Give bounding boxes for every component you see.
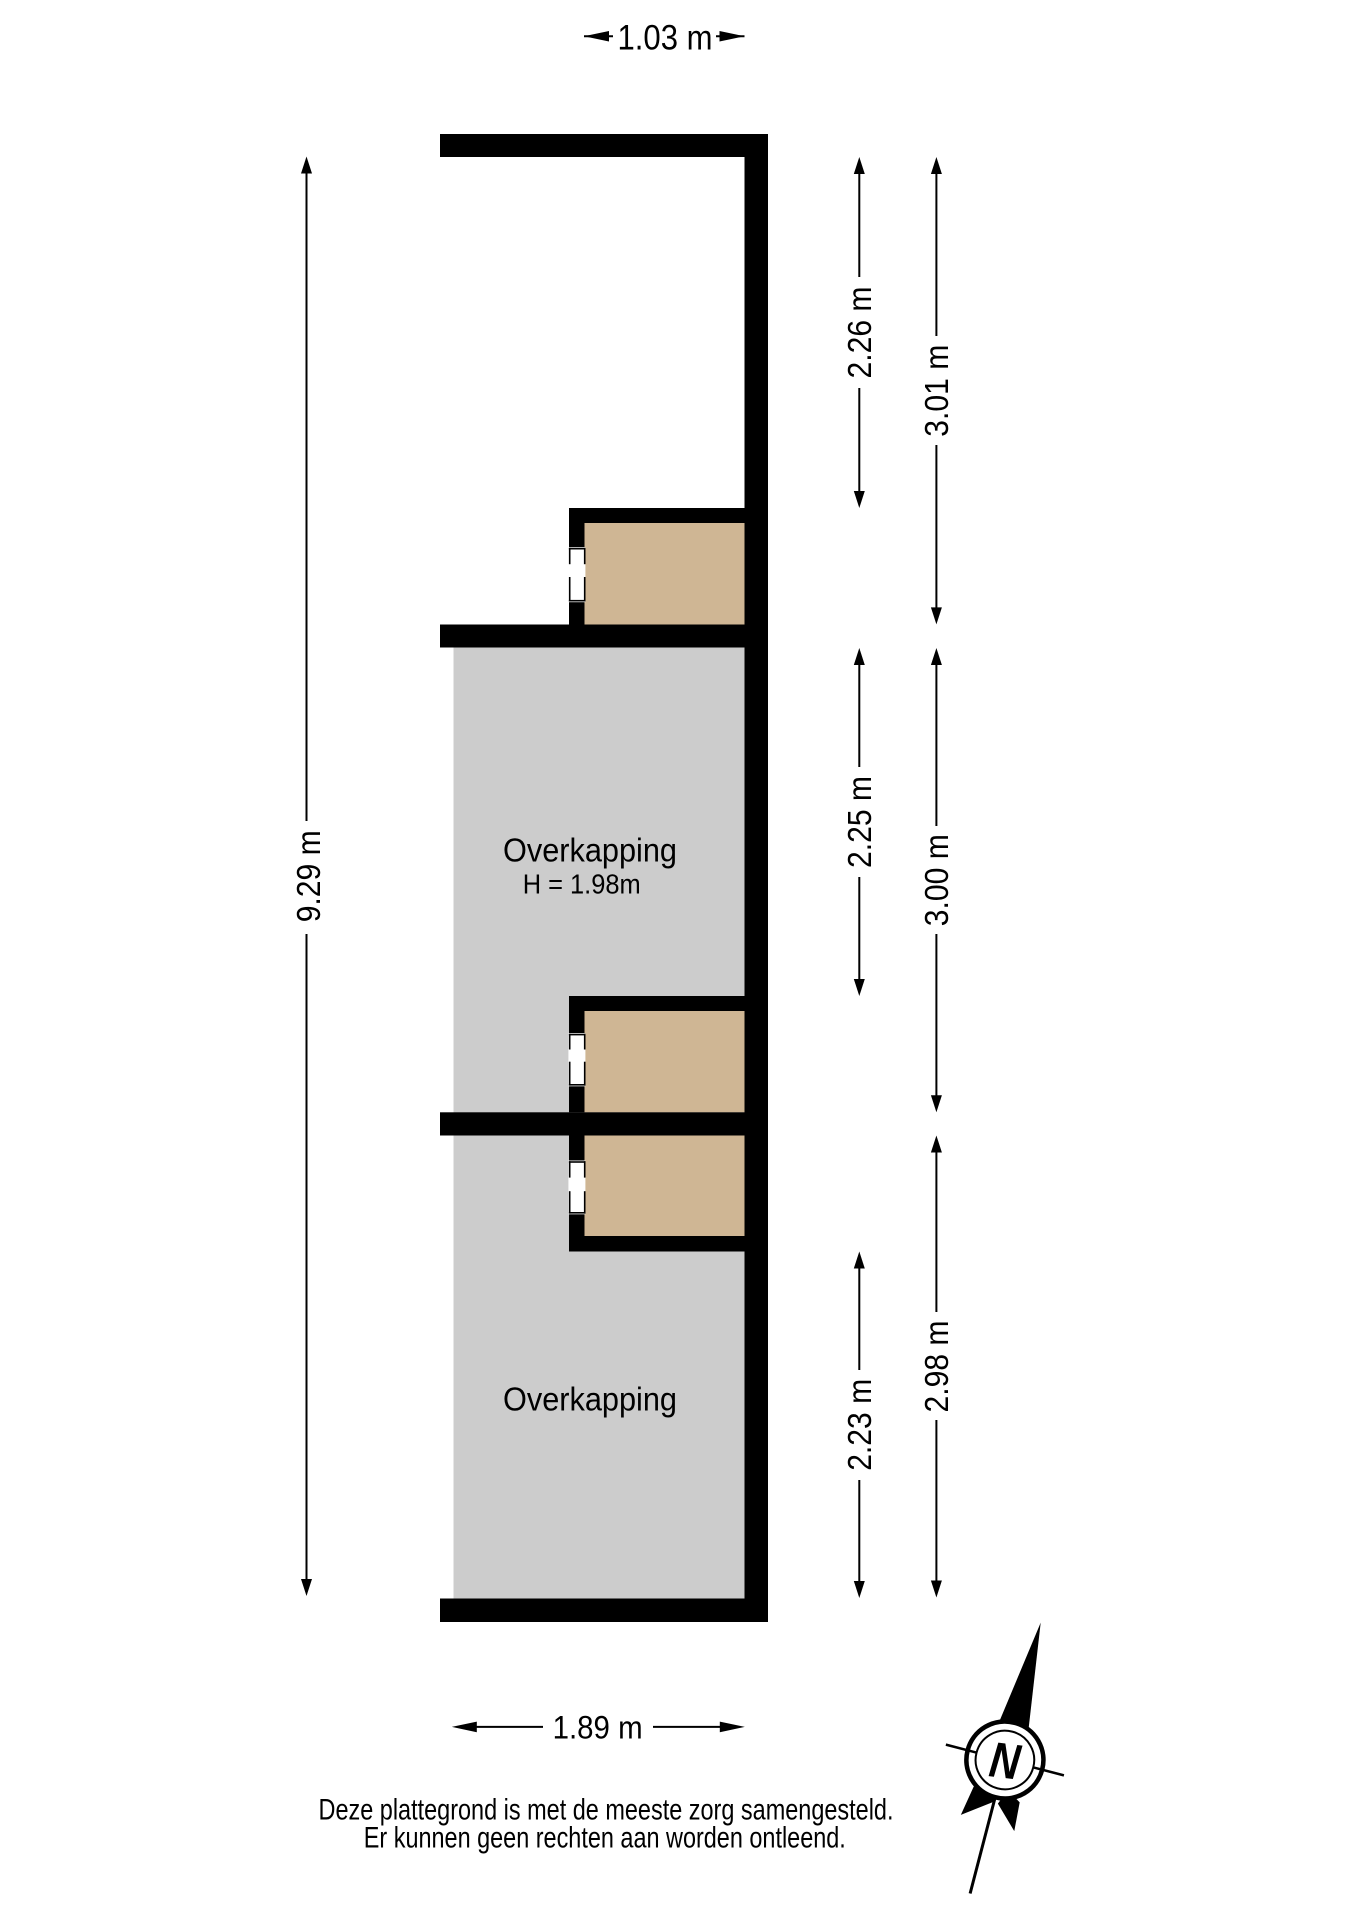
svg-text:2.25 m: 2.25 m	[841, 776, 878, 868]
svg-text:1.89 m: 1.89 m	[553, 1709, 643, 1745]
svg-text:Er kunnen geen rechten aan wor: Er kunnen geen rechten aan worden ontlee…	[364, 1822, 846, 1855]
svg-text:Overkapping: Overkapping	[503, 1381, 677, 1418]
svg-text:2.98 m: 2.98 m	[918, 1321, 955, 1413]
svg-text:2.23 m: 2.23 m	[841, 1379, 878, 1471]
svg-text:9.29 m: 9.29 m	[290, 830, 327, 922]
svg-text:1.03 m: 1.03 m	[618, 19, 713, 58]
svg-text:2.26 m: 2.26 m	[841, 287, 878, 379]
svg-text:H = 1.98m: H = 1.98m	[523, 869, 641, 900]
svg-text:3.00 m: 3.00 m	[918, 834, 955, 926]
svg-text:Overkapping: Overkapping	[503, 832, 677, 869]
svg-text:3.01 m: 3.01 m	[918, 345, 955, 437]
